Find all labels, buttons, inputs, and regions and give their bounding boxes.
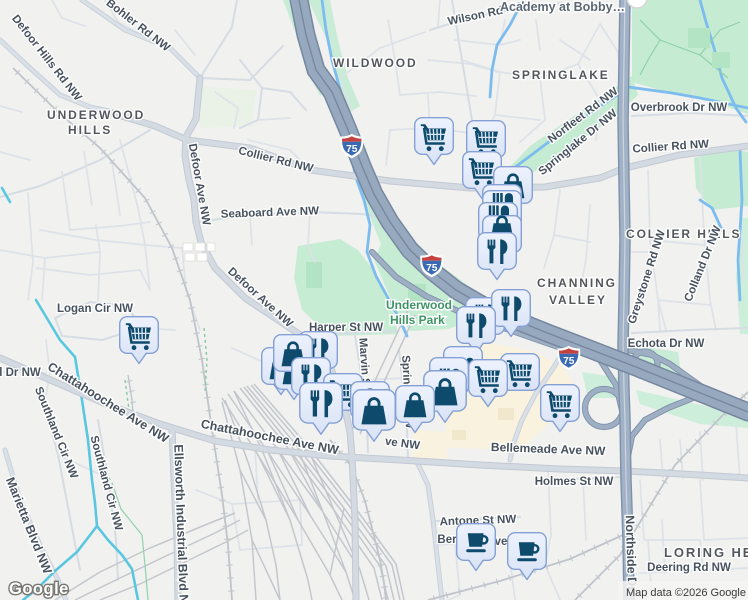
svg-text:l Dr NW: l Dr NW [0,367,41,379]
svg-text:UNDERWOOD: UNDERWOOD [47,108,145,122]
svg-text:Overbrook Dr NW: Overbrook Dr NW [631,102,728,114]
svg-text:Hills Park: Hills Park [390,313,445,327]
svg-text:Map data ©2026 Google: Map data ©2026 Google [626,587,746,599]
svg-text:ve: ve [495,536,508,548]
svg-text:Google: Google [9,580,69,598]
svg-text:SPRINGLAKE: SPRINGLAKE [512,68,610,82]
svg-text:Academy at Bobby…: Academy at Bobby… [500,0,625,14]
svg-text:COLLIER HILLS: COLLIER HILLS [626,227,741,241]
svg-text:VALLEY: VALLEY [549,293,607,307]
svg-text:Ber: Ber [437,534,457,546]
svg-text:Holmes St NW: Holmes St NW [535,476,614,488]
svg-text:Echota Dr NW: Echota Dr NW [628,338,705,350]
svg-text:WILDWOOD: WILDWOOD [333,56,418,70]
svg-text:Underwood: Underwood [386,298,452,312]
svg-text:HILLS: HILLS [68,123,112,137]
svg-text:CHANNING: CHANNING [537,276,617,290]
svg-text:Deering Rd NW: Deering Rd NW [647,562,731,574]
svg-text:Logan Cir NW: Logan Cir NW [57,303,133,315]
svg-text:LORING HEIG: LORING HEIG [664,545,748,560]
